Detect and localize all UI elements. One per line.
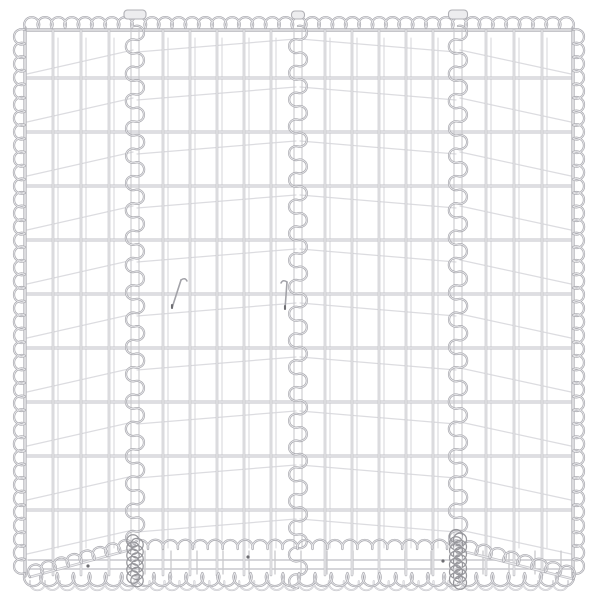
gabion-basket-photo	[0, 0, 600, 600]
gabion-svg	[0, 0, 600, 600]
